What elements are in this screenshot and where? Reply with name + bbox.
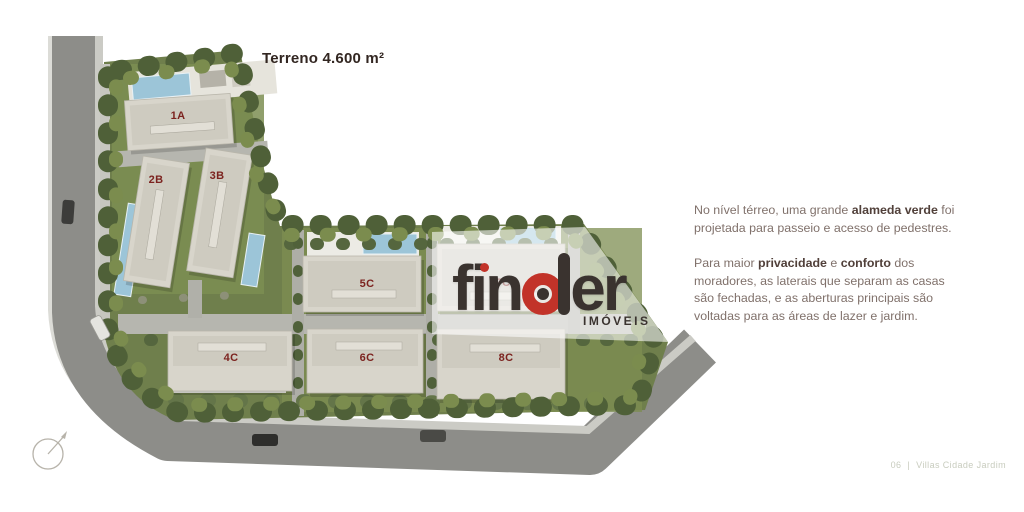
logo-d-glyph — [522, 252, 569, 316]
car-left-dark — [61, 200, 75, 225]
logo-text-er: er — [570, 260, 625, 316]
building-label-5c: 5C — [360, 278, 375, 290]
building-1a — [124, 93, 237, 154]
description-paragraph-2: Para maior privacidade e conforto dos mo… — [694, 255, 966, 325]
p2-text-2: e — [827, 256, 841, 270]
finder-logo: fin er — [452, 252, 625, 316]
footer-title: Villas Cidade Jardim — [916, 460, 1006, 470]
description-block: No nível térreo, uma grande alameda verd… — [694, 202, 966, 344]
building-label-2b: 2B — [149, 174, 164, 186]
building-label-8c: 8C — [499, 352, 514, 364]
page-footer: 06 | Villas Cidade Jardim — [891, 460, 1006, 470]
building-label-3b: 3B — [210, 170, 225, 182]
p2-bold-2: conforto — [841, 256, 891, 270]
logo-fin-letters: fin — [452, 252, 521, 324]
building-label-4c: 4C — [224, 352, 239, 364]
p2-text-1: Para maior — [694, 256, 758, 270]
car-bottom-gray — [420, 430, 446, 442]
p1-bold-1: alameda verde — [852, 203, 938, 217]
footer-separator: | — [907, 460, 910, 470]
building-label-1a: 1A — [171, 110, 186, 122]
p1-text-1: No nível térreo, uma grande — [694, 203, 852, 217]
logo-text-fin: fin — [452, 260, 521, 316]
compass-icon — [33, 431, 67, 469]
terreno-area-label: Terreno 4.600 m² — [262, 50, 384, 67]
logo-tagline: IMÓVEIS — [583, 314, 651, 328]
description-paragraph-1: No nível térreo, uma grande alameda verd… — [694, 202, 966, 237]
building-8c — [437, 329, 568, 403]
p2-bold-1: privacidade — [758, 256, 827, 270]
car-bottom-dark — [252, 434, 278, 446]
footer-page-number: 06 — [891, 460, 902, 470]
logo-i-dot — [480, 263, 489, 272]
stub-path — [188, 280, 202, 318]
brochure-page: Terreno 4.600 m² 1A 2B 3B 5C 7C 4C 6C 8C… — [0, 0, 1024, 512]
logo-d-stem — [558, 253, 570, 315]
building-label-6c: 6C — [360, 352, 375, 364]
